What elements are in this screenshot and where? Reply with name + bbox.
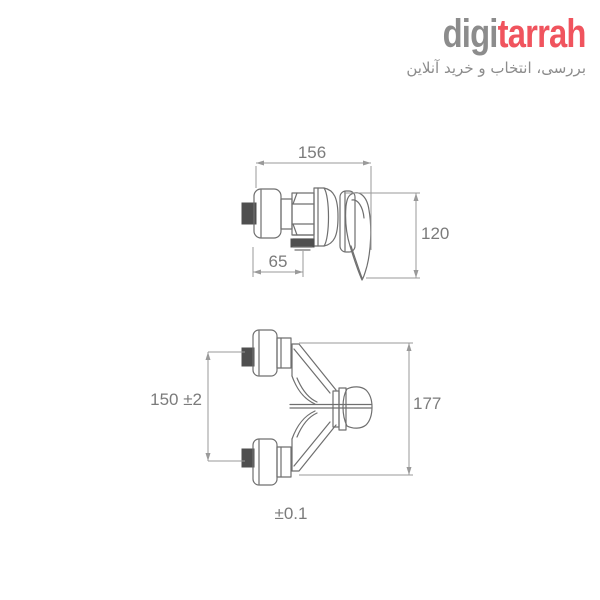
dim-177-arrow-top [407,343,412,351]
dim-150-label: 150 ±2 [150,390,202,409]
product-technical-image: digitarrah بررسی، انتخاب و خرید آنلاین [0,0,600,600]
top-view-drawing [242,330,372,485]
dimension-offset-65: 65 [253,247,303,277]
dimension-depth-177: 177 [299,343,441,475]
dim-150-arrow-top [206,352,211,360]
side-view-drawing [242,188,371,280]
escutcheon-lower [253,439,277,485]
dim-120-label: 120 [421,224,449,243]
dim-120-arrow-top [414,193,419,201]
nut-upper [277,338,291,368]
tolerance-note: ±0.1 [275,504,308,523]
wall-fitting-top [242,348,254,366]
dim-177-arrow-bottom [407,467,412,475]
technical-drawing: 156 120 65 [0,0,600,600]
dim-156-arrow-left [256,161,264,166]
escutcheon-side [254,189,281,238]
dim-177-label: 177 [413,394,441,413]
dim-177-lines [299,343,413,475]
nut-lower [277,447,291,477]
escutcheon-upper [253,330,277,376]
dimension-centers-150: 150 ±2 [150,352,245,461]
dim-156-label: 156 [298,143,326,162]
knob-collar-inner [333,391,339,427]
wall-fitting-bottom [242,449,254,467]
dim-65-arrow-right [295,270,303,275]
body-centerline [290,405,371,409]
cartridge-contours [318,188,329,246]
dim-65-arrow-left [253,270,261,275]
neck-side [281,199,292,229]
hex-nut-facets [292,193,314,235]
dim-156-arrow-right [363,161,371,166]
dim-120-arrow-bottom [414,270,419,278]
outlet-neck [293,235,313,239]
dim-65-label: 65 [269,252,288,271]
dim-150-arrow-bottom [206,453,211,461]
dim-150-lines [208,352,245,461]
dimension-height-120: 120 [344,193,449,278]
outlet-rim [293,247,312,250]
lever-handle-detail [351,200,364,278]
outlet-aerator [291,239,314,247]
